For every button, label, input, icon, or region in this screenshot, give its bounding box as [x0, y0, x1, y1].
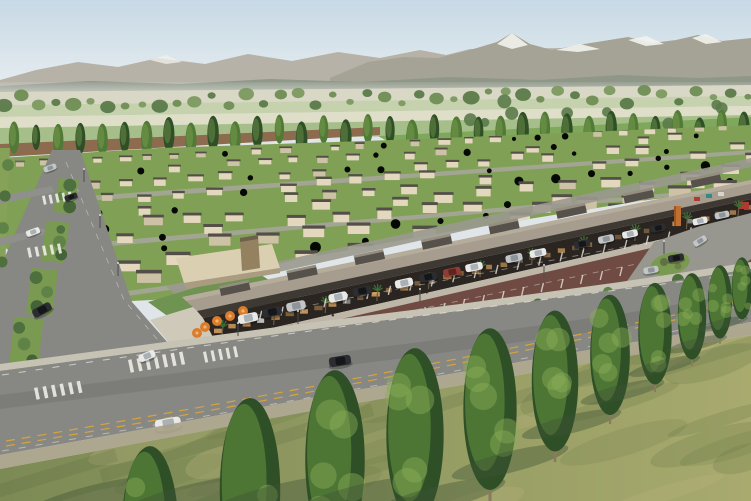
- house-roof: [203, 224, 223, 227]
- house-roof: [551, 194, 572, 197]
- distant-tree: [570, 91, 580, 99]
- poplar-highlight: [9, 124, 15, 146]
- house: [593, 163, 605, 169]
- house-roof: [348, 174, 362, 176]
- house-roof: [142, 154, 152, 156]
- house-roof: [153, 177, 167, 179]
- house-roof: [433, 192, 453, 195]
- house: [423, 205, 437, 213]
- house: [303, 228, 324, 237]
- house: [228, 161, 240, 166]
- house-roof: [256, 232, 279, 235]
- house: [209, 236, 230, 245]
- distant-tree: [275, 90, 287, 100]
- house: [317, 158, 327, 163]
- residential-tree: [551, 144, 557, 150]
- residential-tree: [512, 137, 516, 141]
- house-roof: [392, 197, 409, 200]
- poplar-highlight: [540, 114, 546, 136]
- median-tree: [30, 271, 43, 284]
- distant-tree: [187, 96, 201, 107]
- house: [312, 202, 330, 210]
- house-roof: [138, 206, 152, 209]
- residential-tree: [391, 219, 401, 229]
- poplar-highlight: [364, 116, 370, 136]
- poplar-leaf-clump: [599, 363, 618, 382]
- house-roof: [15, 161, 25, 163]
- house-roof: [168, 165, 181, 167]
- house: [207, 190, 222, 196]
- poplar-leaf-clump: [542, 367, 565, 390]
- house: [644, 129, 655, 134]
- residential-tree: [248, 175, 253, 180]
- house-roof: [287, 215, 306, 218]
- residential-tree: [137, 168, 144, 175]
- house-roof: [519, 181, 534, 184]
- house-roof: [302, 225, 325, 228]
- residential-tree: [504, 201, 511, 208]
- residential-tree: [562, 133, 569, 140]
- house: [196, 153, 206, 157]
- house: [333, 215, 349, 223]
- residential-tree: [381, 143, 387, 149]
- poplar-highlight: [474, 119, 480, 140]
- house-roof: [477, 159, 490, 161]
- house: [636, 148, 649, 154]
- house-roof: [745, 153, 751, 156]
- house: [184, 215, 201, 223]
- median-tree: [18, 338, 31, 351]
- umbrella-top: [195, 331, 198, 334]
- house: [411, 141, 420, 146]
- house-roof: [558, 180, 576, 183]
- residential-tree: [628, 171, 633, 176]
- house-roof: [172, 191, 185, 193]
- poplar-leaf-clump: [708, 284, 717, 293]
- house-roof: [332, 212, 350, 215]
- storefront-sign: [706, 194, 712, 198]
- house: [139, 208, 151, 215]
- poplar-leaf-clump: [656, 312, 672, 328]
- house: [393, 199, 408, 205]
- house-roof: [475, 186, 491, 189]
- house-roof: [606, 145, 620, 147]
- distant-tree: [309, 100, 321, 110]
- house: [143, 156, 151, 160]
- poplar-highlight: [208, 119, 215, 143]
- residential-tree: [588, 170, 595, 177]
- residential-tree: [159, 234, 166, 241]
- residential-tree: [373, 152, 378, 157]
- light-pole-lamp: [297, 310, 299, 312]
- distant-tree: [259, 100, 268, 107]
- house-roof: [119, 179, 133, 181]
- poplar-leaf-clump: [589, 309, 608, 328]
- distant-tree: [450, 96, 457, 102]
- house-roof: [479, 175, 493, 178]
- pedestrian: [332, 314, 334, 316]
- house: [607, 147, 619, 153]
- poplar-highlight: [142, 124, 149, 148]
- distant-tree: [463, 91, 480, 105]
- poplar-highlight: [253, 118, 260, 141]
- house: [226, 215, 243, 221]
- house: [415, 164, 427, 170]
- house-roof: [414, 162, 428, 164]
- meadow-tree: [505, 107, 518, 120]
- distant-tree: [346, 99, 354, 105]
- house: [559, 183, 575, 190]
- house-roof: [410, 140, 421, 142]
- distant-tree: [414, 90, 425, 98]
- distant-tree: [65, 98, 81, 111]
- house-roof: [463, 202, 483, 205]
- poplar-leaf-clump: [310, 462, 336, 488]
- house: [526, 148, 538, 153]
- house: [542, 155, 553, 162]
- house-roof: [435, 148, 448, 150]
- house: [349, 176, 361, 183]
- storefront-window: [228, 324, 235, 329]
- poplar-highlight: [275, 117, 281, 137]
- pedestrian: [629, 242, 631, 244]
- house-roof: [169, 153, 179, 155]
- distant-tree: [551, 86, 564, 96]
- house: [512, 154, 523, 160]
- house-roof: [511, 152, 524, 154]
- house: [331, 147, 339, 151]
- distant-tree: [362, 89, 372, 97]
- house-roof: [638, 136, 650, 138]
- house-roof: [225, 213, 244, 216]
- distant-tree: [173, 100, 182, 107]
- poplar-leaf-clump: [683, 309, 693, 319]
- house-roof: [218, 171, 233, 173]
- house: [137, 273, 161, 283]
- house-roof: [195, 152, 207, 154]
- residential-tree: [694, 133, 699, 138]
- house-roof: [347, 222, 371, 225]
- verge-tree: [2, 159, 14, 171]
- umbrella-top: [228, 314, 231, 317]
- house: [219, 173, 232, 179]
- umbrella-top: [215, 319, 218, 322]
- house: [16, 162, 24, 166]
- house: [464, 205, 482, 212]
- house: [401, 187, 417, 195]
- poplar-leaf-clump: [707, 300, 719, 312]
- house: [436, 149, 447, 155]
- house-roof: [330, 145, 340, 147]
- house-roof: [137, 194, 151, 196]
- residential-tree: [222, 151, 228, 157]
- house-roof: [279, 172, 291, 174]
- house: [170, 155, 178, 159]
- rendering-viewport: [0, 0, 751, 501]
- poplar-leaf-clump: [692, 288, 706, 302]
- distant-tree: [690, 86, 703, 96]
- distant-tree: [725, 89, 737, 98]
- poplar-highlight: [230, 124, 237, 147]
- residential-tree: [664, 149, 669, 154]
- poplar-highlight: [430, 117, 436, 138]
- house-roof: [165, 252, 190, 255]
- house-roof: [251, 148, 262, 150]
- storefront-window: [214, 329, 222, 334]
- house-roof: [322, 190, 337, 193]
- distant-tree: [292, 88, 305, 98]
- house: [385, 173, 400, 180]
- shrub: [660, 258, 668, 266]
- house: [138, 197, 150, 202]
- poplar-leaf-clump: [316, 399, 347, 430]
- house: [668, 128, 676, 132]
- residential-tree: [377, 166, 384, 173]
- umbrella-top: [203, 325, 206, 328]
- light-pole-lamp: [543, 264, 545, 266]
- house-roof: [311, 199, 331, 202]
- house: [626, 161, 639, 167]
- storefront-window: [486, 265, 492, 270]
- house: [280, 148, 291, 153]
- light-pole-lamp: [99, 214, 101, 216]
- poplar-leaf-clump: [679, 297, 692, 310]
- house: [173, 193, 184, 199]
- house: [323, 192, 336, 199]
- distant-tree: [398, 100, 405, 106]
- poplar-leaf-clump: [464, 366, 490, 392]
- distant-tree: [151, 100, 167, 113]
- distant-tree: [329, 92, 337, 98]
- distant-tree: [14, 90, 28, 102]
- distant-tree: [604, 86, 616, 95]
- light-pole-lamp: [419, 288, 421, 290]
- light-pole-lamp: [83, 168, 85, 170]
- storefront-window: [615, 235, 621, 240]
- house-roof: [288, 156, 299, 158]
- house: [668, 135, 681, 141]
- house-roof: [346, 154, 360, 156]
- house: [639, 138, 649, 144]
- storefront-window: [730, 210, 736, 215]
- house: [438, 140, 450, 145]
- house: [490, 137, 501, 142]
- house-roof: [208, 233, 231, 236]
- poplar-leaf-clump: [126, 478, 146, 498]
- house-roof: [668, 185, 692, 188]
- house: [188, 176, 203, 181]
- storefront-window: [314, 306, 322, 311]
- house: [317, 179, 331, 186]
- house: [420, 173, 434, 179]
- house: [313, 171, 325, 176]
- house-roof: [312, 169, 326, 171]
- distant-tree: [710, 94, 718, 100]
- house-roof: [101, 193, 114, 195]
- house: [259, 160, 271, 164]
- house: [144, 217, 163, 225]
- light-pole-lamp: [117, 262, 119, 264]
- house-roof: [592, 161, 606, 163]
- house: [405, 154, 415, 160]
- poplar-leaf-clump: [546, 328, 570, 352]
- light-pole-lamp: [663, 240, 665, 242]
- poplar-highlight: [33, 127, 38, 144]
- palm-trunk: [738, 207, 739, 217]
- house-roof: [446, 160, 460, 162]
- house-roof: [404, 152, 416, 154]
- house: [93, 158, 101, 162]
- distant-tree: [515, 88, 531, 101]
- aerial-render-canvas: [0, 0, 751, 501]
- meadow-tree: [497, 95, 511, 109]
- house: [289, 157, 298, 162]
- house-roof: [183, 213, 202, 216]
- poplar-leaf-clump: [651, 295, 668, 312]
- house: [169, 166, 180, 172]
- house: [363, 190, 375, 196]
- house: [120, 181, 132, 186]
- car-cabin: [335, 356, 346, 365]
- residential-tree: [172, 207, 178, 213]
- house: [257, 235, 278, 243]
- poplar-leaf-clump: [406, 386, 435, 415]
- house: [281, 186, 296, 192]
- poplar-leaf-clump: [740, 275, 750, 285]
- house-roof: [489, 136, 502, 138]
- house-roof: [116, 233, 134, 236]
- storefront-window: [644, 229, 650, 234]
- distant-tree: [223, 101, 234, 110]
- house: [695, 127, 704, 131]
- poplar-highlight: [186, 125, 193, 148]
- house-roof: [92, 157, 102, 159]
- house-roof: [729, 142, 745, 144]
- house: [447, 162, 459, 168]
- house: [288, 218, 305, 226]
- house-roof: [119, 155, 133, 157]
- storefront-window: [558, 248, 565, 253]
- house-roof: [422, 202, 438, 205]
- pedestrian: [426, 291, 428, 293]
- residential-tree: [487, 168, 492, 173]
- house-roof: [295, 250, 318, 254]
- house-roof: [600, 177, 621, 180]
- house-roof: [136, 270, 162, 274]
- residential-tree: [572, 151, 576, 155]
- poplar-leaf-clump: [722, 293, 733, 304]
- distant-tree: [586, 95, 599, 105]
- poplar-leaf-clump: [599, 333, 619, 353]
- house: [102, 195, 113, 201]
- poplar-highlight: [164, 120, 171, 144]
- poplar-highlight: [320, 117, 326, 136]
- house: [601, 180, 620, 188]
- distant-tree: [378, 92, 391, 103]
- house: [117, 236, 133, 243]
- house: [252, 149, 261, 154]
- palm-trunk: [686, 219, 687, 229]
- house: [204, 227, 222, 234]
- residential-tree: [464, 149, 471, 156]
- house: [476, 189, 490, 197]
- house: [619, 131, 628, 136]
- median-tree: [63, 179, 76, 192]
- house: [520, 184, 533, 192]
- distant-tree: [51, 99, 60, 106]
- distant-tree: [637, 85, 650, 96]
- house-roof: [258, 158, 272, 160]
- storefront-sign: [718, 192, 724, 196]
- house-roof: [280, 184, 297, 186]
- storefront-sign: [694, 197, 700, 201]
- house-roof: [635, 146, 650, 148]
- distant-tree: [121, 103, 130, 110]
- house: [730, 144, 744, 149]
- distant-tree: [32, 100, 45, 111]
- house: [347, 155, 359, 160]
- house-roof: [667, 133, 682, 135]
- distant-tree: [620, 98, 634, 109]
- house-roof: [525, 146, 539, 148]
- house: [465, 138, 473, 143]
- umbrella-top: [241, 309, 244, 312]
- house: [434, 195, 452, 203]
- house: [154, 179, 166, 185]
- pedestrian: [688, 225, 690, 227]
- house-roof: [355, 142, 365, 144]
- house-roof: [541, 153, 554, 155]
- house: [480, 177, 492, 184]
- house: [348, 225, 370, 233]
- house-roof: [419, 170, 435, 172]
- house-roof: [376, 208, 392, 211]
- house-roof: [206, 188, 223, 190]
- residential-tree: [437, 218, 443, 224]
- distant-tree: [139, 102, 147, 108]
- house-roof: [400, 184, 418, 187]
- distant-tree: [485, 88, 493, 94]
- poplar-highlight: [120, 124, 126, 145]
- house-roof: [384, 171, 401, 173]
- palm-trunk: [325, 303, 326, 313]
- median-tree: [63, 200, 76, 213]
- distant-tree: [238, 88, 254, 100]
- distant-tree: [429, 93, 443, 105]
- light-pole-lamp: [237, 322, 239, 324]
- poplar-highlight: [98, 126, 105, 148]
- house-roof: [187, 174, 204, 176]
- distant-tree: [656, 89, 668, 98]
- house-roof: [690, 151, 707, 153]
- distant-tree: [536, 96, 544, 103]
- house-roof: [316, 177, 332, 179]
- house: [280, 174, 290, 179]
- house-roof: [279, 146, 292, 148]
- house: [285, 195, 297, 202]
- distant-tree: [501, 87, 511, 95]
- residential-tree: [240, 189, 247, 196]
- house: [478, 161, 489, 166]
- distant-tree: [100, 101, 115, 113]
- house: [120, 157, 132, 161]
- distant-tree: [208, 92, 216, 98]
- house-roof: [316, 156, 328, 158]
- house: [691, 153, 706, 158]
- house-roof: [227, 159, 241, 161]
- residential-tree: [344, 167, 350, 173]
- house: [377, 210, 391, 219]
